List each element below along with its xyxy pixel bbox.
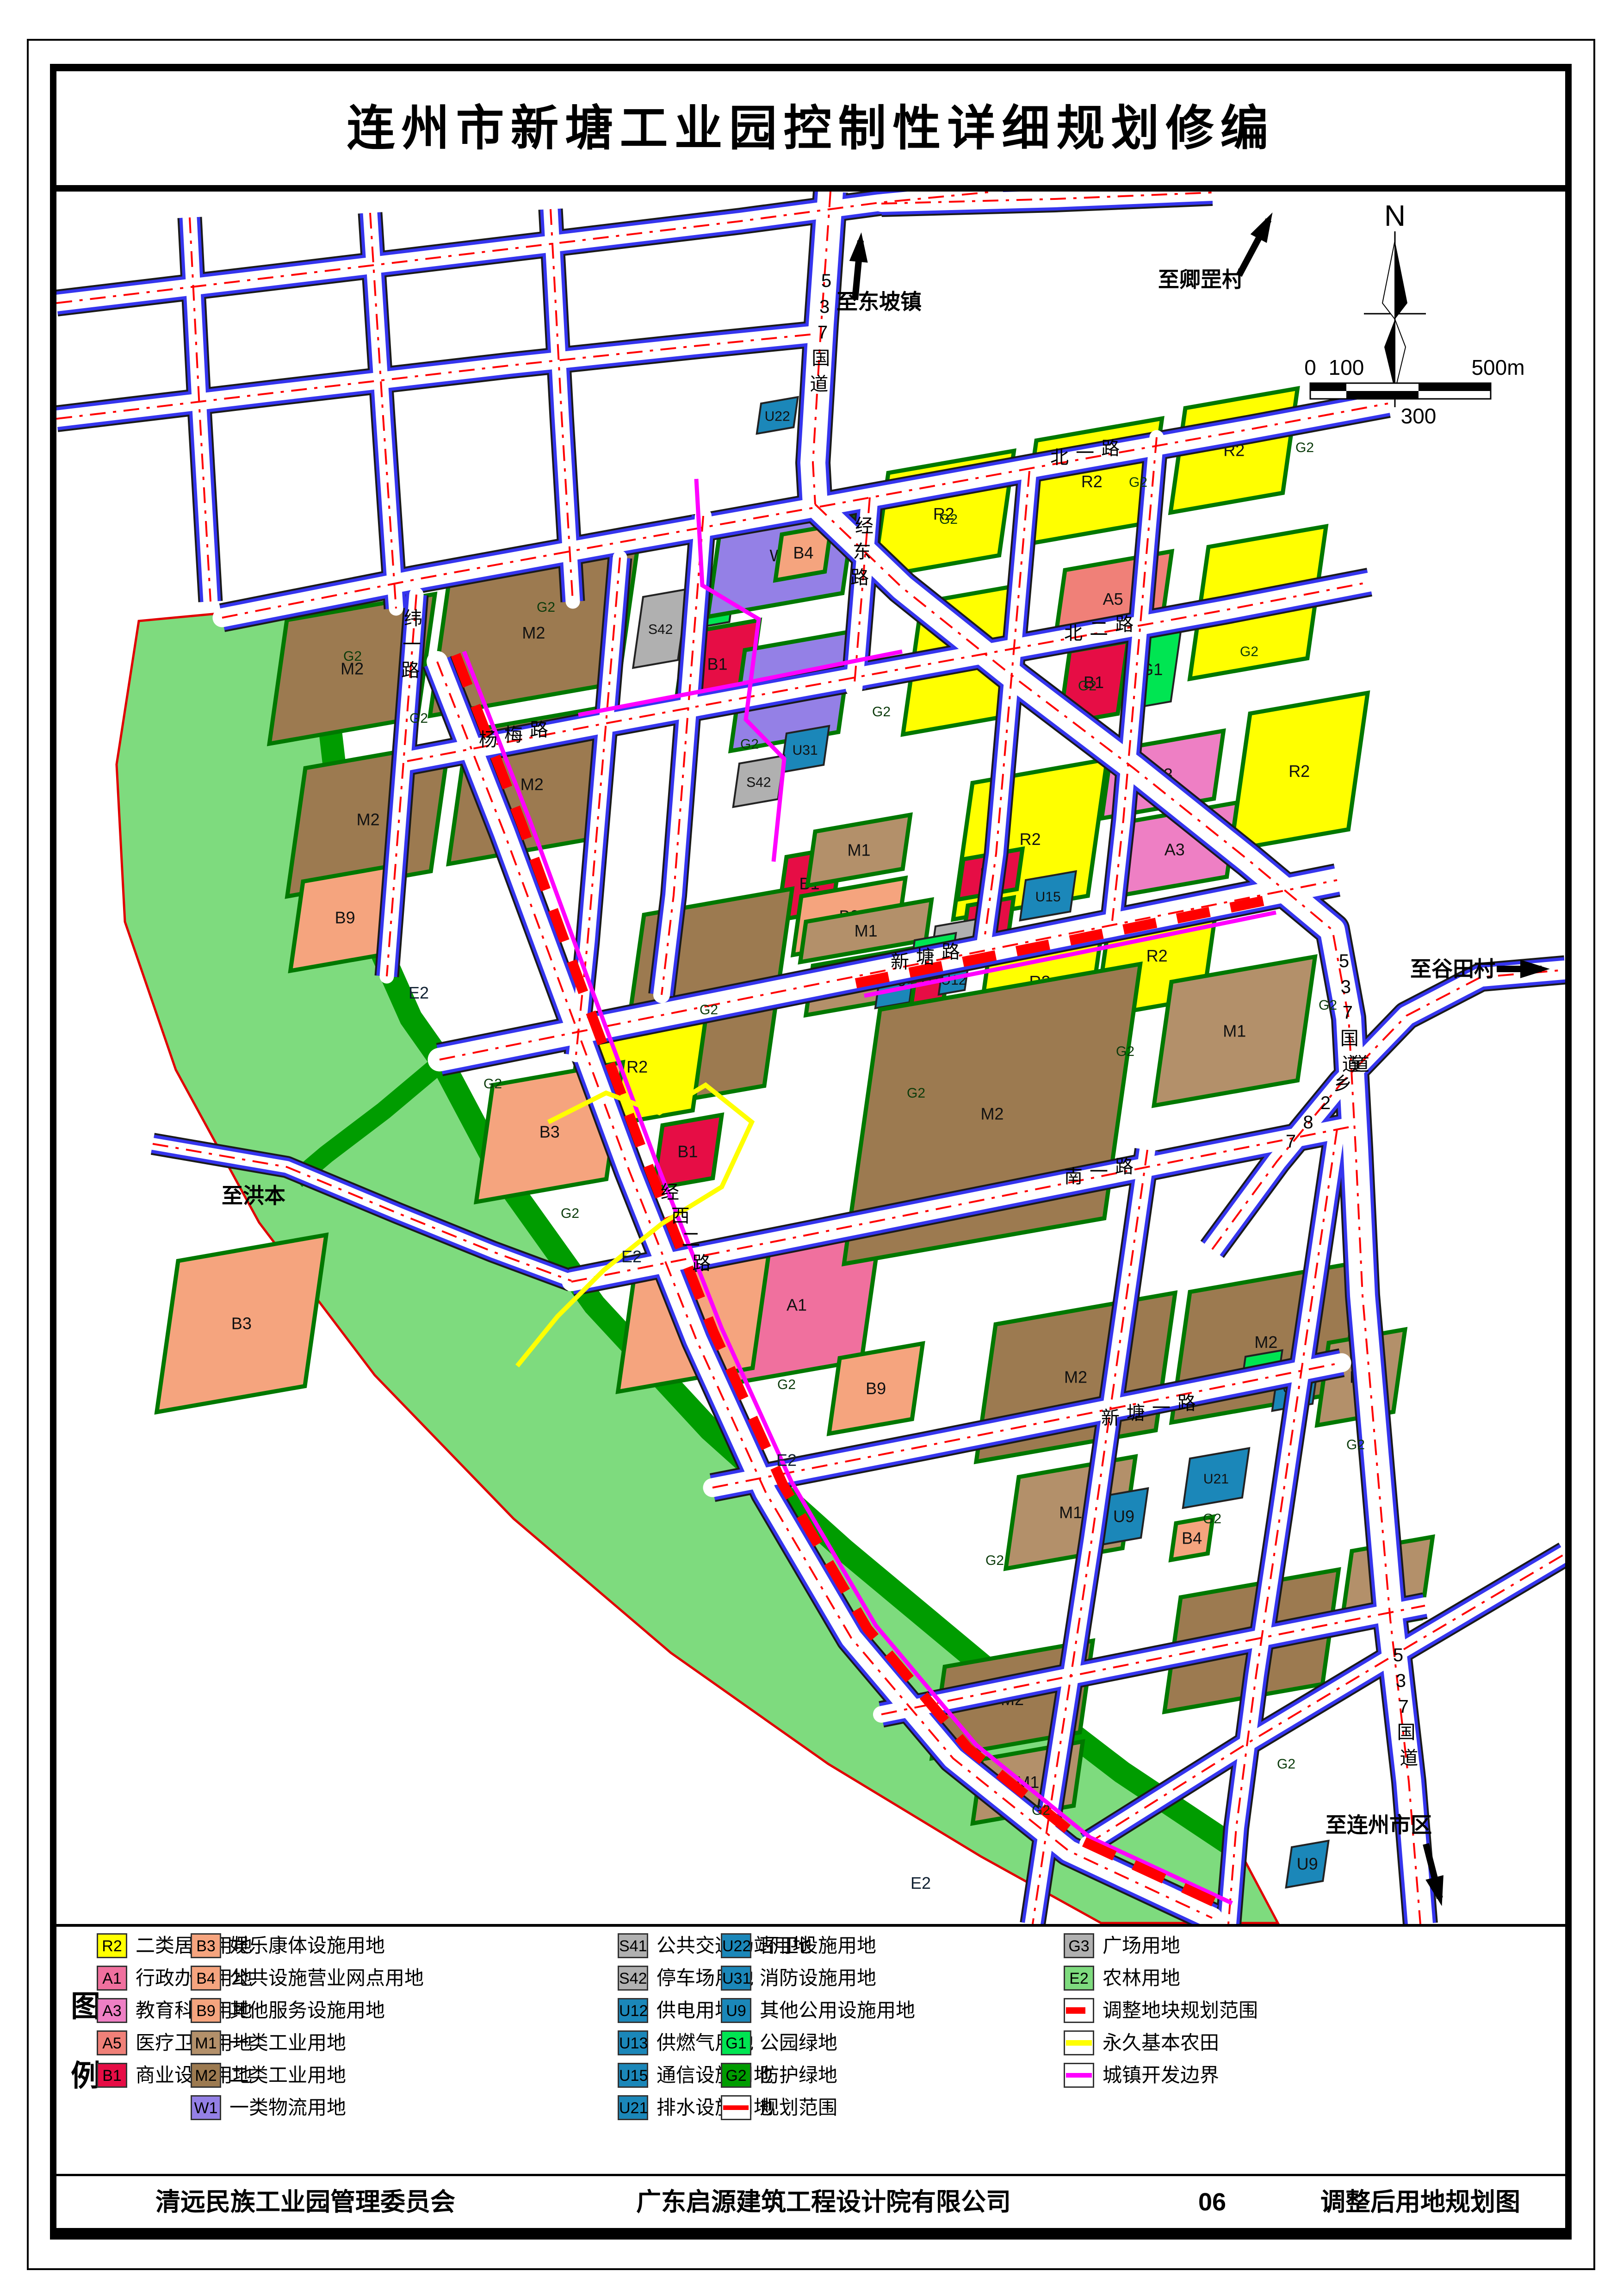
legend-code: A1	[98, 1967, 126, 1990]
legend-label: 公园绿地	[760, 2030, 837, 2055]
legend-swatch-M2: M2	[191, 2063, 221, 2088]
label-g2: G2	[1277, 1756, 1295, 1772]
legend-label: 其他公用设施用地	[760, 1998, 915, 2023]
legend-code: E2	[1065, 1967, 1093, 1990]
annotation-destination: 至卿罡村	[1158, 267, 1243, 292]
road-name-char: 一	[1152, 1398, 1171, 1419]
label-g2: G2	[343, 649, 362, 664]
road-name-char: 路	[942, 942, 960, 962]
label-e2: E2	[409, 983, 429, 1002]
parcel-label-R2: R2	[1020, 830, 1041, 849]
parcel-label-U31: U31	[793, 743, 818, 758]
legend-label: 一类物流用地	[229, 2095, 346, 2120]
legend-code: M2	[192, 2064, 220, 2087]
parcel-label-B3: B3	[231, 1314, 252, 1333]
road-name-char: 杨	[479, 730, 497, 750]
parcel-label-A5: A5	[1103, 590, 1123, 608]
scale-0: 0	[1304, 356, 1316, 379]
annotation-destination: 至东坡镇	[836, 290, 922, 314]
legend-swatch-U13: U13	[618, 2030, 648, 2055]
road-name-char: 新	[891, 952, 909, 972]
parcel-label-B4: B4	[793, 543, 813, 562]
map-canvas: M2M2S42G1B1M2M2W1B4U12W1U31S42U22R2R2R2R…	[56, 192, 1565, 1924]
legend-code: B1	[98, 2064, 126, 2087]
road-name-char: 二	[682, 1229, 700, 1250]
legend-code: U21	[619, 2097, 647, 2120]
compass-kite-ne	[1395, 241, 1407, 319]
label-e2: E2	[776, 1451, 797, 1470]
road-name-char: 3	[1396, 1671, 1406, 1691]
legend-label: 永久基本农田	[1103, 2030, 1219, 2055]
label-g2: G2	[1129, 475, 1147, 490]
road-name-char: 5	[1393, 1645, 1403, 1665]
road-name-char: 新	[1101, 1408, 1120, 1428]
road-name-char: 道	[810, 374, 828, 394]
legend-swatch-A1: A1	[97, 1966, 127, 1991]
label-g2: G2	[1346, 1437, 1365, 1452]
road-name-char: 塘	[916, 947, 935, 967]
parcel-label-U21: U21	[1203, 1471, 1229, 1487]
legend-label: 农林用地	[1103, 1966, 1180, 1991]
parcel-label-M1: M1	[1059, 1503, 1082, 1522]
legend-swatch-U9: U9	[721, 1998, 751, 2023]
road-name-char: 南	[1064, 1167, 1083, 1187]
legend-code: B9	[192, 1999, 220, 2023]
scale-seg-3	[1419, 383, 1491, 391]
road-name-char: 7	[1343, 1003, 1353, 1023]
parcel-label-U9: U9	[1113, 1507, 1134, 1526]
parcel-label-M1: M1	[848, 840, 871, 859]
legend-code: U12	[619, 1999, 647, 2023]
annotation-destination: 至谷田村	[1410, 957, 1495, 981]
label-g2: G2	[777, 1377, 796, 1392]
parcel-label-M1: M1	[855, 921, 878, 940]
label-g2: G2	[939, 512, 958, 527]
road-name-char: 道	[1400, 1748, 1418, 1769]
legend-label: 其他服务设施用地	[229, 1998, 385, 2023]
road-name-char: 乡	[1333, 1074, 1352, 1094]
legend-swatch-A3: A3	[97, 1998, 127, 2023]
legend-swatch-B9: B9	[191, 1998, 221, 2023]
legend-code: S42	[619, 1967, 647, 1990]
road-name-char: 纬	[404, 608, 422, 629]
legend-swatch-R2: R2	[97, 1933, 127, 1958]
road-name-char: 梅	[504, 725, 523, 745]
legend-swatch-line-yellow	[1064, 2030, 1094, 2055]
legend-code: B4	[192, 1967, 220, 1990]
label-g2: G2	[409, 711, 428, 726]
road-name-char: 5	[821, 271, 831, 291]
road-name-char: 一	[1076, 443, 1094, 463]
label-g2: G2	[1240, 644, 1258, 659]
road-surface	[1228, 1129, 1337, 1924]
label-g2: G2	[872, 704, 891, 720]
parcel-label-U22: U22	[765, 409, 790, 424]
road-name-char: 北	[1064, 623, 1083, 644]
road-name-char: 7	[1286, 1131, 1296, 1152]
legend-swatch-U15: U15	[618, 2063, 648, 2088]
legend-label: 广场用地	[1103, 1933, 1180, 1958]
label-g2: G2	[483, 1076, 502, 1092]
north-label: N	[1384, 199, 1406, 232]
parcel-label-A3: A3	[1165, 840, 1185, 859]
road-name-char: 道	[1351, 1055, 1369, 1075]
legend-code: G2	[722, 2064, 750, 2087]
legend-swatch-E2: E2	[1064, 1966, 1094, 1991]
parcel-label-B1: B1	[707, 655, 727, 674]
legend-code: G3	[1065, 1935, 1093, 1958]
frame-bar-footer-top	[50, 2174, 1572, 2176]
label-g2: G2	[561, 1206, 579, 1221]
parcel-label-R2: R2	[1288, 762, 1310, 781]
legend-swatch-S42: S42	[618, 1966, 648, 1991]
label-e2: E2	[621, 1247, 642, 1266]
legend-swatch-B3: B3	[191, 1933, 221, 1958]
legend-label: 通信设施用地	[657, 2063, 773, 2088]
road-name-char: 东	[853, 542, 871, 562]
road-name-char: 国	[1340, 1029, 1359, 1049]
road-name-char: 国	[811, 348, 830, 369]
road-name-char: 路	[1115, 614, 1134, 635]
frame-bar-title-bottom	[50, 185, 1572, 192]
legend-swatch-line-red-dash-thin	[721, 2095, 751, 2120]
road-name-char: 北	[1050, 447, 1069, 468]
legend-swatch-line-red-dash	[1064, 1998, 1094, 2023]
label-g2: G2	[907, 1086, 925, 1101]
road-name-char: 一	[403, 634, 421, 655]
annotation-destination: 至连州市区	[1326, 1813, 1432, 1837]
label-g2: G2	[1203, 1511, 1221, 1527]
legend-swatch-U22: U22	[721, 1933, 751, 1958]
plan-sheet: 连州市新塘工业园控制性详细规划修编 M2M2S42G1B1M2M2W1B4U12…	[0, 0, 1623, 2296]
parcel-label-B4: B4	[1182, 1529, 1202, 1548]
legend-code: U13	[619, 2032, 647, 2055]
legend-swatch-G1: G1	[721, 2030, 751, 2055]
parcel-label-U9: U9	[1297, 1855, 1318, 1874]
scale-seg-1	[1310, 383, 1346, 391]
legend-label: 规划范围	[760, 2095, 837, 2120]
legend-label: 城镇开发边界	[1103, 2063, 1219, 2088]
legend-swatch-S41: S41	[618, 1933, 648, 1958]
legend-code: M1	[192, 2032, 220, 2055]
road-name-char: 经	[855, 516, 873, 536]
road-name-char: 2	[1320, 1093, 1331, 1113]
direction-arrow-head	[849, 232, 868, 263]
frame-bar-legend-top	[50, 1924, 1572, 1927]
legend-swatch-U12: U12	[618, 1998, 648, 2023]
road-name-char: 路	[1177, 1393, 1196, 1414]
legend-code: U31	[722, 1967, 750, 1990]
frame-bar-left	[50, 64, 56, 2240]
parcel-label-M2: M2	[980, 1104, 1004, 1123]
scale-100: 100	[1329, 356, 1364, 379]
road-name-char: 3	[1341, 977, 1351, 997]
legend-label: 一类工业用地	[229, 2030, 346, 2055]
frame-bar-top	[50, 64, 1572, 71]
parcel-label-S42: S42	[648, 622, 673, 637]
legend-label: 公共设施营业网点用地	[229, 1966, 424, 1991]
label-g2: G2	[1295, 440, 1314, 455]
legend-code: U15	[619, 2064, 647, 2087]
legend-label: 娱乐康体设施用地	[229, 1933, 385, 1958]
road-name-char: 路	[850, 568, 869, 588]
legend-label: 防护绿地	[760, 2063, 837, 2088]
label-g2: G2	[537, 600, 555, 615]
scale-300: 300	[1401, 404, 1437, 428]
road-name-char: 8	[1303, 1112, 1313, 1132]
legend-swatch-B1: B1	[97, 2063, 127, 2088]
road-name-char: 3	[819, 297, 830, 317]
footer-design-firm: 广东启源建筑工程设计院有限公司	[620, 2178, 1027, 2227]
legend-swatch-A5: A5	[97, 2030, 127, 2055]
label-g2: G2	[740, 737, 759, 752]
road-name-char: 国	[1397, 1722, 1416, 1743]
parcel-label-A1: A1	[787, 1295, 807, 1314]
parcel-label-M1: M1	[1223, 1021, 1246, 1040]
legend-swatch-G3: G3	[1064, 1933, 1094, 1958]
label-g2: G2	[985, 1553, 1004, 1568]
road-name-char: 西	[671, 1206, 690, 1226]
parcel-label-R2: R2	[1081, 472, 1103, 491]
legend-code: G1	[722, 2032, 750, 2055]
frame-bar-bottom	[50, 2228, 1572, 2240]
parcel-label-B9: B9	[866, 1379, 886, 1398]
road-name-char: 5	[1339, 951, 1349, 971]
parcel-label-R2: R2	[626, 1057, 648, 1076]
parcel-label-B3: B3	[539, 1123, 560, 1142]
road-name-char: 路	[692, 1253, 711, 1273]
legend-swatch-M1: M1	[191, 2030, 221, 2055]
legend-code: U22	[722, 1935, 750, 1958]
parcel-label-S42: S42	[746, 775, 771, 790]
road-name-char: 二	[1090, 619, 1108, 639]
direction-arrow-head	[1251, 212, 1273, 243]
road-name-char: 经	[661, 1182, 679, 1203]
legend-code: S41	[619, 1935, 647, 1958]
legend-code: U9	[722, 1999, 750, 2023]
legend-label: 调整地块规划范围	[1103, 1998, 1258, 2023]
legend-label: 排水设施用地	[657, 2095, 773, 2120]
legend-swatch-U21: U21	[618, 2095, 648, 2120]
legend-code: A5	[98, 2032, 126, 2055]
parcel-label-M2: M2	[1064, 1368, 1087, 1387]
label-g2: G2	[1032, 1803, 1050, 1818]
legend-code: B3	[192, 1935, 220, 1958]
label-g2: G2	[1319, 998, 1337, 1013]
legend-code: A3	[98, 1999, 126, 2023]
parcel-label-M2: M2	[520, 775, 544, 794]
road-name-char: 7	[1399, 1696, 1409, 1717]
frame-bar-right	[1565, 64, 1572, 2240]
parcel-label-U15: U15	[1035, 889, 1061, 905]
legend-swatch-U31: U31	[721, 1966, 751, 1991]
legend-label: 消防设施用地	[760, 1966, 876, 1991]
footer-sheet-number: 06	[1175, 2178, 1249, 2227]
road-name-char: 路	[401, 660, 420, 681]
label-g2: G2	[1078, 678, 1096, 694]
footer-sheet-name: 调整后用地规划图	[1305, 2178, 1536, 2227]
legend-swatch-G2: G2	[721, 2063, 751, 2088]
road-name-char: 路	[1115, 1157, 1134, 1177]
parcel-label-R2: R2	[1146, 946, 1168, 965]
road-name-char: 路	[530, 720, 548, 740]
road-name-char: 一	[1090, 1161, 1108, 1182]
legend-code: W1	[192, 2097, 220, 2120]
sheet-title: 连州市新塘工业园控制性详细规划修编	[56, 78, 1565, 180]
legend-swatch-W1: W1	[191, 2095, 221, 2120]
legend-code: R2	[98, 1935, 126, 1958]
legend-label: 环卫设施用地	[760, 1933, 876, 1958]
scale-500: 500m	[1471, 356, 1524, 379]
parcel-label-B1: B1	[677, 1142, 698, 1161]
footer-org: 清远民族工业园管理委员会	[130, 2178, 481, 2227]
legend-swatch-B4: B4	[191, 1966, 221, 1991]
compass-kite-nw	[1382, 241, 1395, 319]
label-g2: G2	[1116, 1044, 1134, 1059]
scale-bar: 0 100 500m 300	[1291, 356, 1531, 430]
road-name-char: 7	[818, 323, 828, 343]
parcel-label-M2: M2	[357, 810, 380, 829]
parcel-label-M2: M2	[1254, 1333, 1277, 1352]
annotation-destination: 至洪本	[222, 1184, 285, 1208]
legend-swatch-line-magenta	[1064, 2063, 1094, 2088]
parcel-label-M2: M2	[522, 623, 545, 642]
road-name-char: 路	[1101, 439, 1120, 459]
label-e2: E2	[911, 1874, 931, 1893]
road-name-char: 塘	[1127, 1403, 1145, 1423]
label-g2: G2	[700, 1002, 718, 1018]
scale-seg-2	[1346, 391, 1419, 399]
parcel-label-B9: B9	[335, 908, 355, 927]
legend-label: 二类工业用地	[229, 2063, 346, 2088]
